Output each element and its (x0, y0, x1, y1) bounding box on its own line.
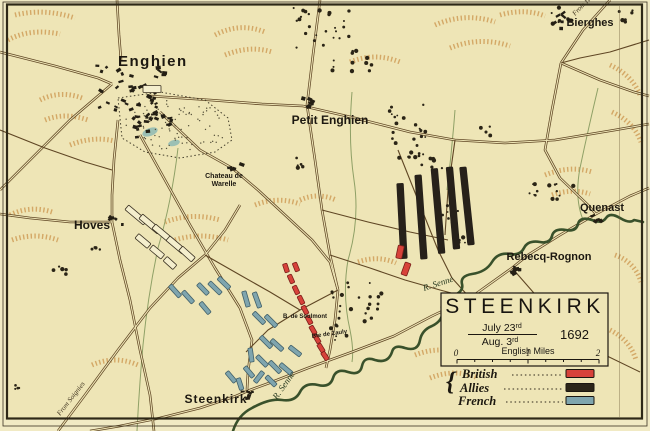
park-dot (183, 111, 184, 112)
tree (327, 11, 331, 15)
tree (333, 37, 335, 39)
label-hoves: Hoves (74, 218, 110, 232)
tree (547, 183, 551, 187)
tree (334, 339, 336, 341)
legend-swatch-british (566, 370, 594, 378)
tree (363, 319, 367, 323)
park-dot (205, 129, 206, 130)
tree (298, 17, 302, 21)
park-dot (143, 126, 144, 127)
park-dot (149, 121, 150, 122)
park-dot (155, 129, 156, 130)
tree (338, 317, 341, 320)
tree (430, 166, 433, 169)
park-dot (185, 114, 186, 115)
tree (418, 152, 421, 155)
park-dot (165, 122, 166, 123)
park-dot (182, 143, 183, 144)
tree (308, 25, 311, 28)
park-dot (152, 144, 153, 145)
tree (391, 113, 393, 115)
allied-march-column-bar (143, 86, 161, 93)
park-dot (154, 135, 155, 136)
park-dot (214, 111, 215, 112)
label-enghien: Enghien (118, 53, 188, 70)
park-dot (168, 145, 169, 146)
legend-swatch-french (566, 397, 594, 405)
tree (479, 126, 483, 130)
tree (332, 66, 334, 68)
park-dot (189, 112, 190, 113)
tree (346, 281, 349, 284)
tree (14, 384, 17, 387)
tree (368, 295, 371, 298)
tree (424, 136, 426, 138)
building (144, 120, 149, 123)
legend-label-british: British (461, 367, 497, 381)
park-dot (143, 127, 144, 128)
tree (447, 211, 449, 213)
park-dot (222, 137, 223, 138)
title-box: STEENKIRK July 23rd Aug. 3rd 1692 Englis… (441, 293, 608, 366)
park-dot (161, 148, 162, 149)
tree (91, 248, 94, 251)
tree (349, 307, 353, 311)
tree (392, 131, 395, 134)
tree (368, 69, 371, 72)
tree (529, 192, 531, 194)
tree (446, 204, 449, 207)
park-dot (181, 136, 182, 137)
tree (340, 293, 344, 297)
label-rebecq-rognon: Rebecq-Rognon (507, 251, 592, 263)
tree (339, 305, 341, 307)
tree (422, 153, 424, 155)
legend-label-french: French (457, 394, 496, 408)
park-dot (180, 110, 181, 111)
tree (351, 50, 354, 53)
tree (64, 268, 67, 271)
legend-swatch-allies (566, 384, 594, 392)
tree (554, 183, 556, 185)
tree (559, 195, 561, 197)
park-dot (209, 107, 210, 108)
building (135, 136, 139, 139)
tree (317, 8, 321, 12)
tree (555, 197, 559, 201)
tree (630, 11, 633, 14)
park-dot (209, 125, 210, 126)
park-dot (150, 139, 151, 140)
tree (304, 32, 307, 35)
park-dot (191, 144, 192, 145)
tree (338, 37, 340, 39)
park-dot (197, 119, 198, 120)
park-dot (202, 114, 203, 115)
tree (423, 130, 427, 134)
park-dot (186, 137, 187, 138)
tree (347, 9, 350, 12)
scale-1: 1 (526, 348, 531, 358)
park-dot (189, 149, 190, 150)
tree (396, 115, 398, 117)
park-dot (143, 113, 144, 114)
tree (99, 248, 101, 250)
tree (364, 61, 368, 65)
tree (418, 154, 421, 157)
tree (332, 293, 334, 295)
tree (550, 197, 554, 201)
building (95, 65, 99, 67)
tree (461, 235, 465, 239)
park-dot (166, 148, 167, 149)
tree (342, 26, 345, 29)
tree (457, 210, 459, 212)
park-dot (144, 106, 145, 107)
tree (422, 104, 424, 106)
park-dot (167, 106, 168, 107)
tree (489, 125, 491, 127)
tree (409, 150, 413, 154)
park-dot (178, 114, 179, 115)
park-dot (206, 107, 207, 108)
label-bierghes: Bierghes (566, 17, 613, 29)
tree (413, 155, 417, 159)
park-dot (214, 135, 215, 136)
tree (377, 295, 381, 299)
label-chateau-2: Warelle (212, 181, 237, 188)
tree (447, 217, 450, 220)
tree (414, 123, 417, 126)
park-dot (159, 145, 160, 146)
park-dot (145, 138, 146, 139)
park-dot (126, 125, 127, 126)
tree (391, 137, 394, 140)
park-dot (184, 107, 185, 108)
park-dot (174, 138, 175, 139)
park-dot (146, 110, 147, 111)
park-dot (218, 117, 219, 118)
label-steenkirk: Steenkirk (184, 392, 247, 406)
tree (397, 156, 401, 160)
tree (369, 282, 371, 284)
tree (347, 286, 350, 289)
tree (388, 109, 392, 113)
tree (488, 134, 492, 138)
tree (335, 30, 337, 32)
park-dot (179, 108, 180, 109)
tree (296, 166, 300, 170)
park-dot (166, 100, 167, 101)
tree (441, 167, 443, 169)
park-dot (216, 142, 217, 143)
tree (368, 303, 371, 306)
tree (339, 310, 341, 312)
tree (377, 302, 380, 305)
tree (343, 20, 345, 22)
park-dot (159, 136, 160, 137)
scale-2: 2 (596, 348, 601, 358)
tree (429, 157, 433, 161)
tree (334, 27, 336, 29)
legend-label-allies: Allies (459, 381, 489, 395)
building (513, 268, 517, 272)
park-dot (166, 103, 167, 104)
tree (370, 316, 373, 319)
tree (350, 69, 354, 73)
tree (315, 34, 317, 36)
park-dot (158, 109, 159, 110)
tree (533, 194, 535, 196)
tree (347, 35, 350, 38)
park-dot (203, 112, 204, 113)
park-dot (217, 115, 218, 116)
park-dot (191, 114, 192, 115)
tree (395, 121, 399, 125)
park-dot (169, 128, 170, 129)
tree (322, 44, 325, 47)
tree (333, 59, 335, 61)
park-dot (175, 125, 176, 126)
tree (420, 135, 423, 138)
map-page: Enghien Petit Enghien Bierghes Quenast R… (0, 0, 650, 431)
tree (536, 190, 539, 193)
tree (394, 141, 398, 145)
label-chateau-1: Chateau de (205, 173, 243, 180)
label-petit-enghien: Petit Enghien (292, 113, 369, 127)
tree (330, 68, 334, 72)
tree (419, 128, 421, 130)
tree (551, 12, 553, 14)
tree (464, 242, 466, 244)
tree (335, 324, 338, 327)
tree (295, 157, 298, 160)
park-dot (203, 141, 204, 142)
tree (557, 6, 561, 10)
tree (295, 47, 297, 49)
building (148, 95, 151, 99)
park-dot (188, 125, 189, 126)
tree (364, 312, 366, 314)
tree (402, 116, 406, 120)
park-dot (144, 115, 145, 116)
label-quenast: Quenast (580, 202, 624, 214)
tree (379, 291, 383, 295)
tree (325, 30, 328, 33)
tree (351, 61, 355, 65)
building (560, 20, 563, 23)
park-dot (161, 127, 162, 128)
tree (366, 307, 370, 311)
park-dot (144, 137, 145, 138)
tree (571, 184, 575, 188)
tree (329, 326, 333, 330)
park-dot (206, 110, 207, 111)
tree (484, 131, 487, 134)
park-dot (198, 106, 199, 107)
tree (60, 267, 64, 271)
tree (393, 116, 396, 119)
park-dot (177, 133, 178, 134)
tree (313, 39, 316, 42)
park-dot (212, 141, 213, 142)
tree (358, 296, 361, 299)
building (161, 74, 166, 77)
tree (624, 20, 627, 23)
park-dot (218, 135, 219, 136)
park-dot (178, 137, 179, 138)
building (121, 223, 124, 226)
park-dot (169, 130, 170, 131)
tree (58, 265, 60, 267)
tree (407, 156, 409, 158)
tree (556, 190, 558, 192)
scale-0: 0 (454, 348, 459, 358)
tree (93, 246, 96, 249)
tree (296, 20, 298, 22)
tree (304, 10, 308, 14)
tree (376, 308, 379, 311)
park-dot (175, 139, 176, 140)
park-dot (134, 112, 135, 113)
tree (308, 13, 310, 15)
park-dot (210, 142, 211, 143)
tree (14, 388, 16, 390)
tree (390, 106, 393, 109)
tree (532, 183, 534, 185)
tree (412, 137, 415, 140)
park-dot (125, 119, 126, 120)
tree (416, 144, 419, 147)
tree (293, 7, 295, 9)
park-dot (199, 120, 200, 121)
tree (332, 296, 334, 298)
tree (354, 49, 358, 53)
tree (370, 63, 374, 67)
tree (64, 272, 68, 276)
tree (301, 165, 304, 168)
tree (52, 268, 56, 272)
year: 1692 (560, 327, 589, 342)
label-soulmont: B. de Soulmont (283, 314, 327, 320)
map-svg: Enghien Petit Enghien Bierghes Quenast R… (0, 0, 650, 431)
map-title: STEENKIRK (445, 295, 605, 318)
park-dot (175, 119, 176, 120)
park-dot (180, 129, 181, 130)
tree (420, 164, 423, 167)
building (559, 27, 563, 30)
tree (365, 56, 369, 60)
park-dot (186, 142, 187, 143)
building (146, 130, 151, 134)
tree (16, 387, 19, 390)
park-dot (200, 142, 201, 143)
tree (631, 9, 633, 11)
